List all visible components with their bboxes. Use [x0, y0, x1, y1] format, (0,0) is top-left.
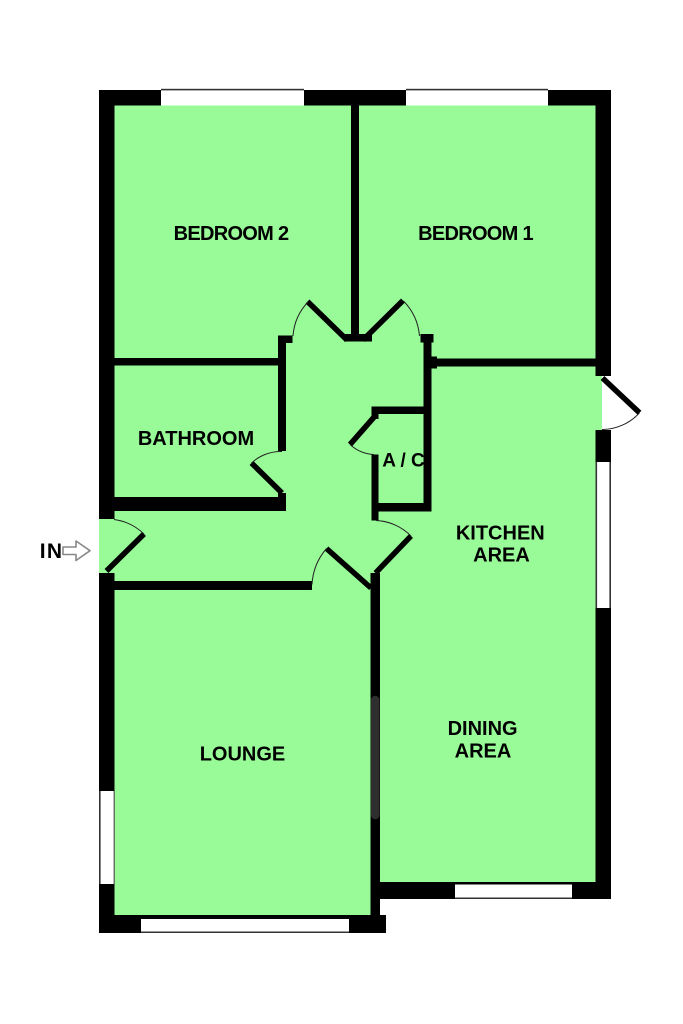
svg-text:AREA: AREA: [473, 545, 530, 567]
svg-text:IN: IN: [40, 540, 64, 563]
svg-text:BATHROOM: BATHROOM: [138, 428, 254, 450]
svg-text:A / C: A / C: [382, 451, 425, 472]
svg-text:DINING: DINING: [448, 718, 518, 740]
svg-text:BEDROOM 1: BEDROOM 1: [418, 223, 533, 245]
svg-text:BEDROOM 2: BEDROOM 2: [174, 223, 289, 245]
svg-text:KITCHEN: KITCHEN: [456, 522, 545, 544]
svg-text:LOUNGE: LOUNGE: [200, 744, 286, 766]
svg-text:AREA: AREA: [455, 740, 512, 762]
